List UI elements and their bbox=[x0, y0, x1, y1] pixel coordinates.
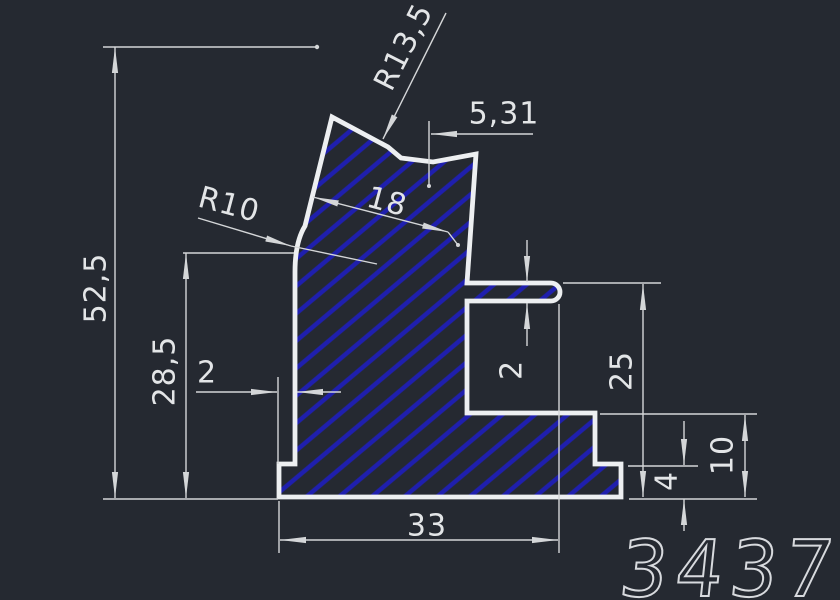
radius-label-notch: R13,5 bbox=[367, 0, 440, 96]
dim-total-height: 52,5 bbox=[79, 45, 320, 499]
dim-label-step-height: 10 bbox=[706, 435, 741, 475]
profile-outline bbox=[279, 117, 621, 497]
cad-viewport[interactable]: 52,5 28,5 2 18 R10 R13,5 5,31 bbox=[0, 0, 840, 600]
dim-label-upper-height: 28,5 bbox=[148, 336, 183, 407]
leader-radius-notch: R13,5 bbox=[367, 0, 446, 139]
radius-label-left: R10 bbox=[195, 180, 264, 230]
dim-label-base-thickness: 4 bbox=[650, 471, 685, 491]
dim-label-right-height: 25 bbox=[605, 351, 640, 391]
extension-end-dot bbox=[456, 243, 460, 247]
dim-base-thickness: 4 bbox=[628, 421, 698, 531]
dim-upper-height: 28,5 bbox=[148, 253, 295, 498]
extension-end-dot bbox=[427, 184, 431, 188]
cad-drawing-canvas[interactable]: 52,5 28,5 2 18 R10 R13,5 5,31 bbox=[0, 0, 840, 600]
dim-label-base-width: 33 bbox=[407, 509, 447, 544]
dim-label-total-height: 52,5 bbox=[79, 253, 114, 324]
dim-label-left-lip: 2 bbox=[197, 356, 217, 391]
extension-end-dot bbox=[315, 45, 319, 49]
dim-label-notch-offset: 5,31 bbox=[469, 97, 540, 132]
dim-fin-thickness: 2 bbox=[495, 240, 530, 380]
dim-label-fin-thickness: 2 bbox=[495, 360, 530, 380]
profile-section bbox=[279, 117, 621, 497]
part-number: 3437 bbox=[616, 524, 840, 600]
